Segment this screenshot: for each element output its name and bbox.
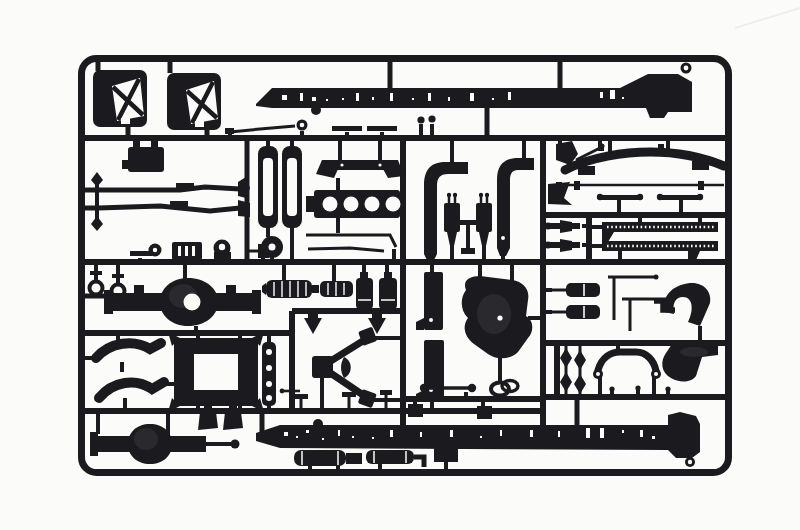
sprue-photo: [0, 0, 800, 530]
t-clip-a: [332, 126, 362, 131]
sprue-image: [0, 0, 800, 530]
cab-corner-panel-right: [167, 73, 221, 130]
ladder-strip: [262, 342, 276, 406]
fan-pulley-disc: [261, 236, 283, 258]
cab-corner-panel-left: [93, 70, 147, 127]
muffler-pair: [262, 280, 353, 298]
t-clip-b: [367, 126, 397, 131]
grill-fitting: [172, 242, 202, 260]
battery-box-frame: [168, 332, 264, 412]
engine-block: [306, 190, 404, 218]
hook-fitting: [214, 240, 232, 261]
